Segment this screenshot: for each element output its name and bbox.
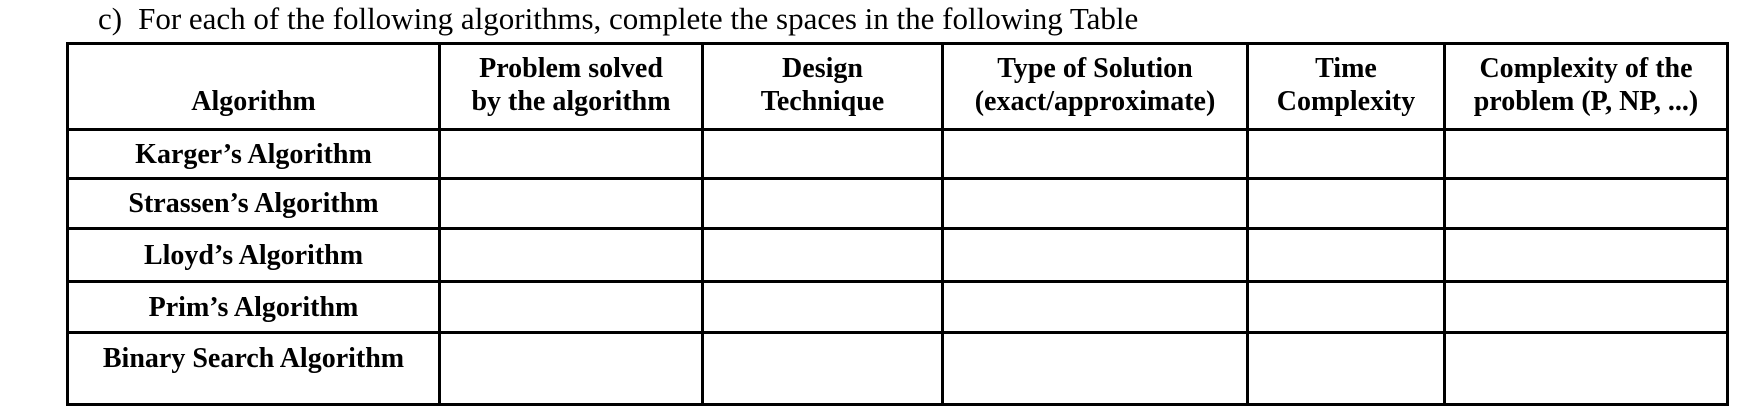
header-line: (exact/approximate): [948, 85, 1242, 118]
answer-cell[interactable]: [943, 130, 1248, 179]
answer-cell[interactable]: [943, 179, 1248, 229]
header-line: Type of Solution: [948, 52, 1242, 85]
row-label: Karger’s Algorithm: [68, 130, 440, 179]
header-line: Design: [708, 52, 937, 85]
row-prims-algorithm: Prim’s Algorithm: [68, 282, 1728, 333]
answer-cell[interactable]: [440, 229, 703, 282]
header-line: Time: [1253, 52, 1439, 85]
header-cell-type-of-solution: Type of Solution (exact/approximate): [943, 44, 1248, 130]
answer-cell[interactable]: [1248, 229, 1445, 282]
answer-cell[interactable]: [1445, 282, 1728, 333]
answer-cell[interactable]: [1248, 130, 1445, 179]
header-cell-problem-solved: Problem solved by the algorithm: [440, 44, 703, 130]
answer-cell[interactable]: [703, 333, 943, 405]
header-line: Technique: [708, 85, 937, 118]
answer-cell[interactable]: [703, 282, 943, 333]
answer-cell[interactable]: [703, 130, 943, 179]
answer-cell[interactable]: [1248, 333, 1445, 405]
answer-cell[interactable]: [943, 333, 1248, 405]
answer-cell[interactable]: [440, 282, 703, 333]
row-label: Binary Search Algorithm: [68, 333, 440, 405]
answer-cell[interactable]: [703, 229, 943, 282]
algorithms-table: Algorithm Problem solved by the algorith…: [66, 42, 1729, 406]
header-line: Problem solved: [445, 52, 697, 85]
answer-cell[interactable]: [1445, 333, 1728, 405]
answer-cell[interactable]: [943, 282, 1248, 333]
header-line: Complexity: [1253, 85, 1439, 118]
row-binary-search-algorithm: Binary Search Algorithm: [68, 333, 1728, 405]
row-strassens-algorithm: Strassen’s Algorithm: [68, 179, 1728, 229]
answer-cell[interactable]: [440, 333, 703, 405]
header-cell-design-technique: Design Technique: [703, 44, 943, 130]
header-cell-algorithm: Algorithm: [68, 44, 440, 130]
answer-cell[interactable]: [1445, 229, 1728, 282]
row-label: Strassen’s Algorithm: [68, 179, 440, 229]
answer-cell[interactable]: [440, 179, 703, 229]
answer-cell[interactable]: [1248, 282, 1445, 333]
answer-cell[interactable]: [703, 179, 943, 229]
row-label: Prim’s Algorithm: [68, 282, 440, 333]
answer-cell[interactable]: [943, 229, 1248, 282]
answer-cell[interactable]: [1445, 130, 1728, 179]
row-label: Lloyd’s Algorithm: [68, 229, 440, 282]
question-text: For each of the following algorithms, co…: [138, 1, 1138, 36]
row-lloyds-algorithm: Lloyd’s Algorithm: [68, 229, 1728, 282]
header-cell-problem-complexity: Complexity of the problem (P, NP, ...): [1445, 44, 1728, 130]
answer-cell[interactable]: [1248, 179, 1445, 229]
header-cell-time-complexity: Time Complexity: [1248, 44, 1445, 130]
question-marker: c): [98, 1, 122, 36]
row-kargers-algorithm: Karger’s Algorithm: [68, 130, 1728, 179]
header-line: Algorithm: [73, 85, 434, 118]
header-row: Algorithm Problem solved by the algorith…: [68, 44, 1728, 130]
answer-cell[interactable]: [1445, 179, 1728, 229]
header-line: by the algorithm: [445, 85, 697, 118]
header-line: problem (P, NP, ...): [1450, 85, 1722, 118]
answer-cell[interactable]: [440, 130, 703, 179]
header-line: Complexity of the: [1450, 52, 1722, 85]
question-heading: c)For each of the following algorithms, …: [98, 1, 1138, 37]
